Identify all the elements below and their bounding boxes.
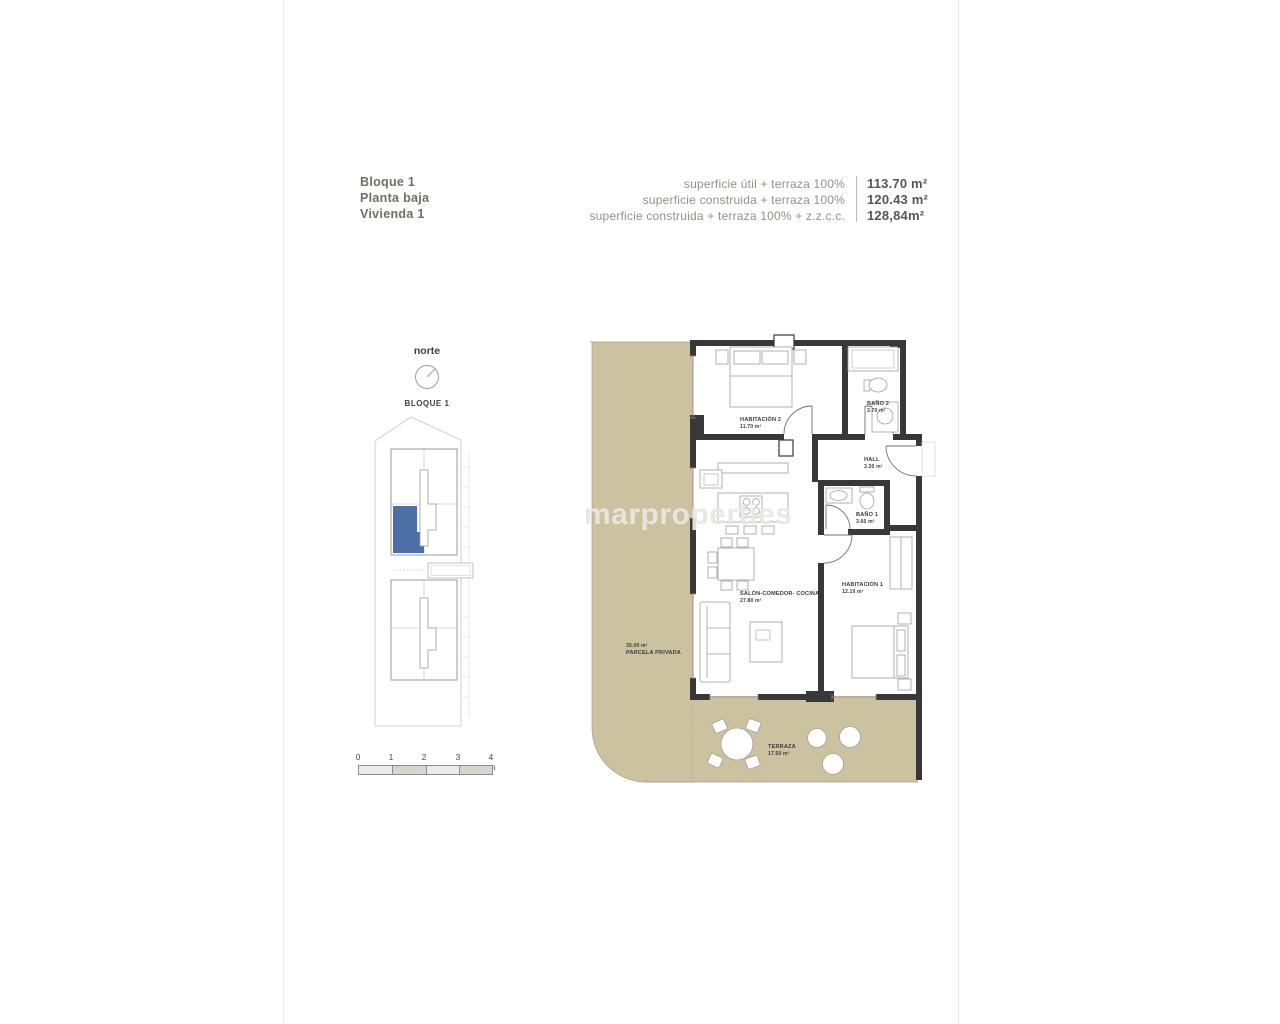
surface-value: 120.43 m² bbox=[867, 192, 928, 208]
room-area-habitacion-1: 12.10 m² bbox=[842, 589, 864, 595]
floor-name: Planta baja bbox=[360, 190, 429, 206]
room-label-parcela: PARCELA PRIVADA bbox=[626, 650, 681, 656]
scale-tick-label: 0 bbox=[356, 752, 361, 762]
scale-bar-ruler bbox=[358, 765, 493, 775]
room-area-salon: 27.80 m² bbox=[740, 598, 762, 604]
room-area-habitacion-2: 11.70 m² bbox=[740, 424, 761, 430]
unit-name: Vivienda 1 bbox=[360, 206, 429, 222]
site-plan-title: BLOQUE 1 bbox=[398, 399, 456, 408]
scale-tick-label: 1 bbox=[389, 752, 394, 762]
scale-tick-label: 3 bbox=[456, 752, 461, 762]
site-plan bbox=[355, 412, 525, 752]
surface-label: superficie construida + terraza 100% bbox=[520, 192, 845, 208]
unit-identifier: Bloque 1 Planta baja Vivienda 1 bbox=[360, 174, 429, 222]
room-area-hall: 3.30 m² bbox=[864, 464, 883, 470]
surface-value: 113.70 m² bbox=[867, 176, 928, 192]
watermark: marproperties bbox=[584, 498, 792, 532]
content-left-border bbox=[283, 0, 284, 1024]
room-area-bano-2: 3.70 m² bbox=[867, 408, 886, 414]
room-area-terraza: 17.50 m² bbox=[768, 751, 790, 757]
floor-plan: HABITACIÓN 2 11.70 m² BAÑO 2 3.70 m² HAL… bbox=[580, 330, 980, 810]
room-area-parcela: 35.00 m² bbox=[626, 643, 648, 649]
header-divider bbox=[856, 176, 857, 222]
scale-tick-label: 2 bbox=[422, 752, 427, 762]
surface-value: 128,84m² bbox=[867, 208, 928, 224]
room-label-hall: HALL bbox=[864, 457, 880, 463]
surface-labels: superficie útil + terraza 100% superfici… bbox=[520, 176, 845, 224]
room-label-bano-2: BAÑO 2 bbox=[867, 400, 889, 407]
scale-bar: 0 1 2 3 4 m bbox=[352, 752, 502, 780]
private-plot-area bbox=[590, 342, 693, 782]
floorplan-page: Bloque 1 Planta baja Vivienda 1 superfic… bbox=[0, 0, 1280, 1024]
entry-porch bbox=[922, 442, 935, 476]
room-label-salon: SALÓN-COMEDOR- COCINA bbox=[740, 589, 819, 597]
room-area-bano-1: 3.60 m² bbox=[856, 519, 875, 525]
room-label-habitacion-1: HABITACIÓN 1 bbox=[842, 580, 883, 588]
room-label-terraza: TERRAZA bbox=[768, 744, 796, 750]
compass-label: norte bbox=[405, 345, 449, 357]
surface-label: superficie útil + terraza 100% bbox=[520, 176, 845, 192]
surface-values: 113.70 m² 120.43 m² 128,84m² bbox=[867, 176, 928, 224]
room-label-habitacion-2: HABITACIÓN 2 bbox=[740, 415, 781, 423]
compass-icon bbox=[411, 361, 443, 393]
room-label-bano-1: BAÑO 1 bbox=[856, 511, 878, 518]
surface-label: superficie construida + terraza 100% + z… bbox=[520, 208, 845, 224]
block-name: Bloque 1 bbox=[360, 174, 429, 190]
